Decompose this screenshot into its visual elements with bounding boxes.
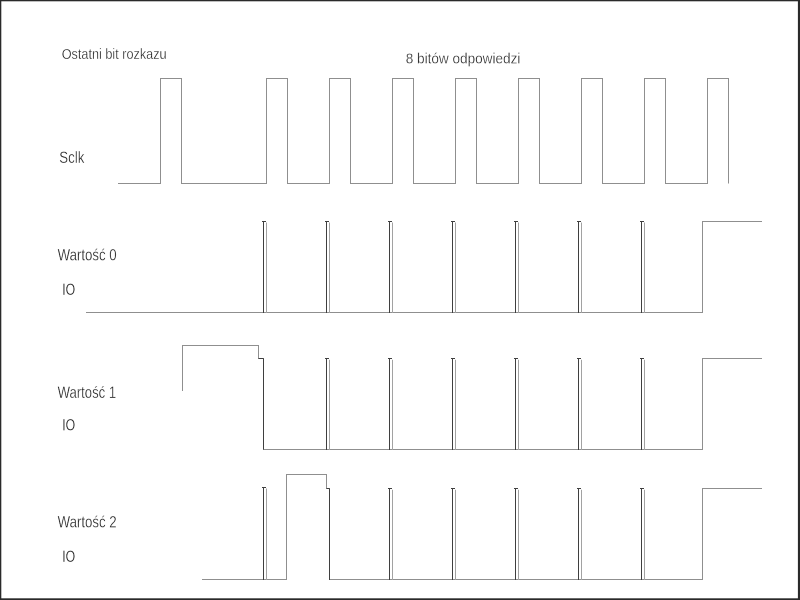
svg-text:IO: IO [62,417,75,435]
svg-text:Wartość 2: Wartość 2 [58,513,117,532]
svg-text:8 bitów odpowiedzi: 8 bitów odpowiedzi [406,51,521,68]
svg-text:Sclk: Sclk [59,149,84,168]
svg-text:Wartość 0: Wartość 0 [58,246,117,265]
svg-text:IO: IO [62,281,75,299]
svg-text:IO: IO [62,548,75,566]
svg-text:Ostatni bit rozkazu: Ostatni bit rozkazu [62,45,167,62]
svg-text:Wartość 1: Wartość 1 [58,383,117,402]
